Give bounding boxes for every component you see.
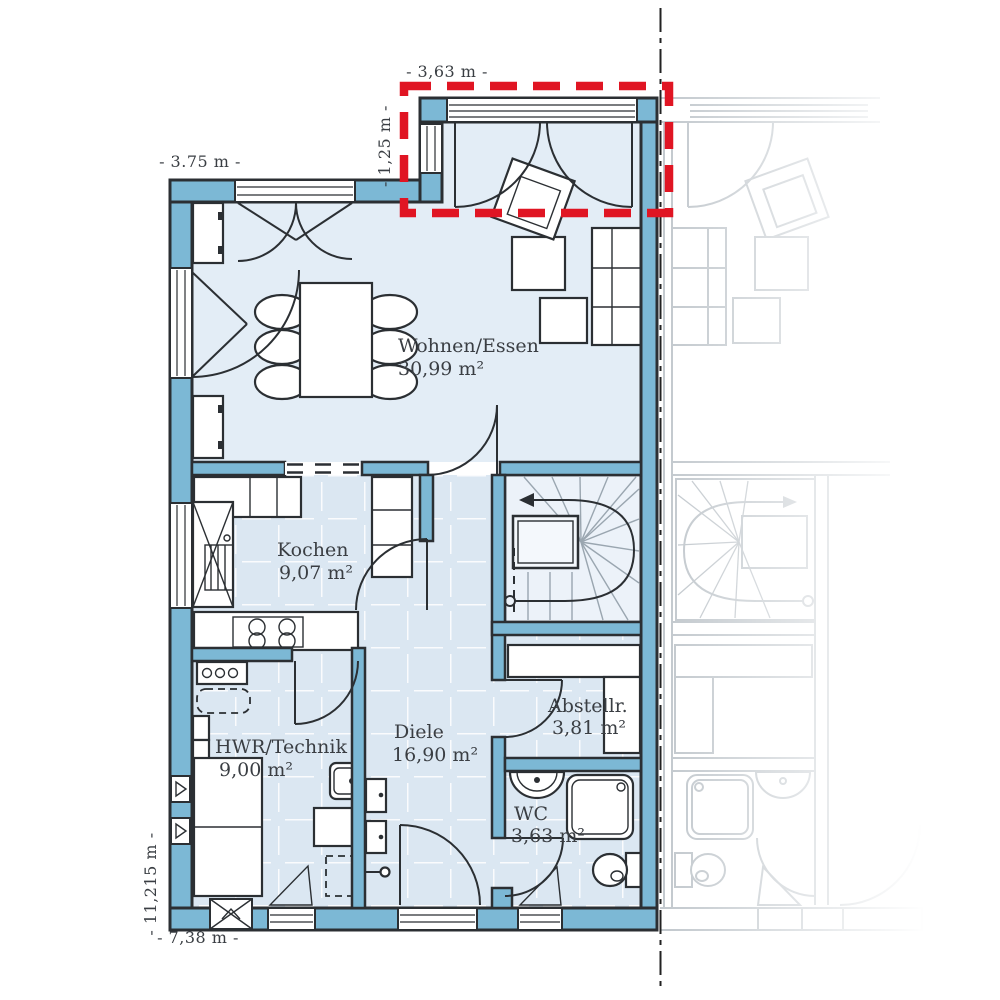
wall-stairs-abstellraum [492, 622, 641, 635]
coffee-table [512, 237, 565, 290]
toilet-tank [626, 853, 641, 887]
window-bottom-hwr [268, 908, 315, 930]
sofa [592, 228, 641, 345]
work-table [314, 808, 352, 846]
room-label-wohnen-area: 30,99 m² [398, 358, 484, 380]
room-label-diele-name: Diele [394, 721, 444, 743]
window-bottom-wc [518, 908, 562, 930]
room-label-diele-area: 16,90 m² [392, 744, 478, 766]
room-label-abstellraum-name: Abstellr. [547, 695, 628, 717]
window-top [235, 180, 355, 202]
room-label-hwr-area: 9,00 m² [219, 759, 293, 781]
window-left-terrace-door [170, 268, 192, 378]
room-label-wohnen-name: Wohnen/Essen [398, 335, 539, 357]
shelf [508, 645, 640, 677]
dining-set [255, 283, 417, 399]
entrance-door-leaf [398, 908, 477, 930]
floor-plan-page: Wohnen/Essen 30,99 m² Kochen 9,07 m² Die… [0, 0, 1000, 1000]
wall-kochen-hwr [192, 648, 292, 661]
wall-diele-stairs [492, 475, 505, 680]
window-left-kitchen [170, 503, 192, 608]
appliance-panel [197, 662, 247, 684]
room-label-kochen-name: Kochen [277, 539, 348, 561]
wall-abstellraum-wc [505, 758, 641, 771]
dim-bay-depth: - 1,25 m - [375, 105, 394, 187]
wall-party [641, 122, 657, 908]
toilet [593, 854, 627, 886]
window-bay-side [420, 124, 442, 173]
dining-table [300, 283, 372, 397]
wall-kochen-diele [420, 475, 433, 541]
room-label-abstellraum-area: 3,81 m² [552, 717, 626, 739]
pantry-shelf [193, 502, 233, 607]
service-box [210, 899, 252, 929]
room-label-kochen-area: 9,07 m² [279, 562, 353, 584]
dim-front-width: - 3.75 m - [159, 152, 241, 171]
dim-bay-width: - 3,63 m - [406, 62, 488, 81]
kitchen-cabinet [372, 477, 412, 577]
window-bay [447, 98, 637, 122]
dim-house-width: - 7,38 m - [157, 928, 239, 947]
floor-plan: Wohnen/Essen 30,99 m² Kochen 9,07 m² Die… [0, 0, 1000, 1000]
room-label-wc-area: 3,63 m² [511, 825, 585, 847]
room-label-wc-name: WC [514, 803, 548, 825]
wall-hwr-diele [352, 648, 365, 908]
neighbor-fade [660, 0, 1000, 1000]
dim-house-depth: - 11,215 m - [141, 832, 160, 935]
side-table [540, 298, 587, 343]
room-label-hwr-name: HWR/Technik [215, 736, 347, 758]
kitchen-worktop [194, 612, 358, 650]
